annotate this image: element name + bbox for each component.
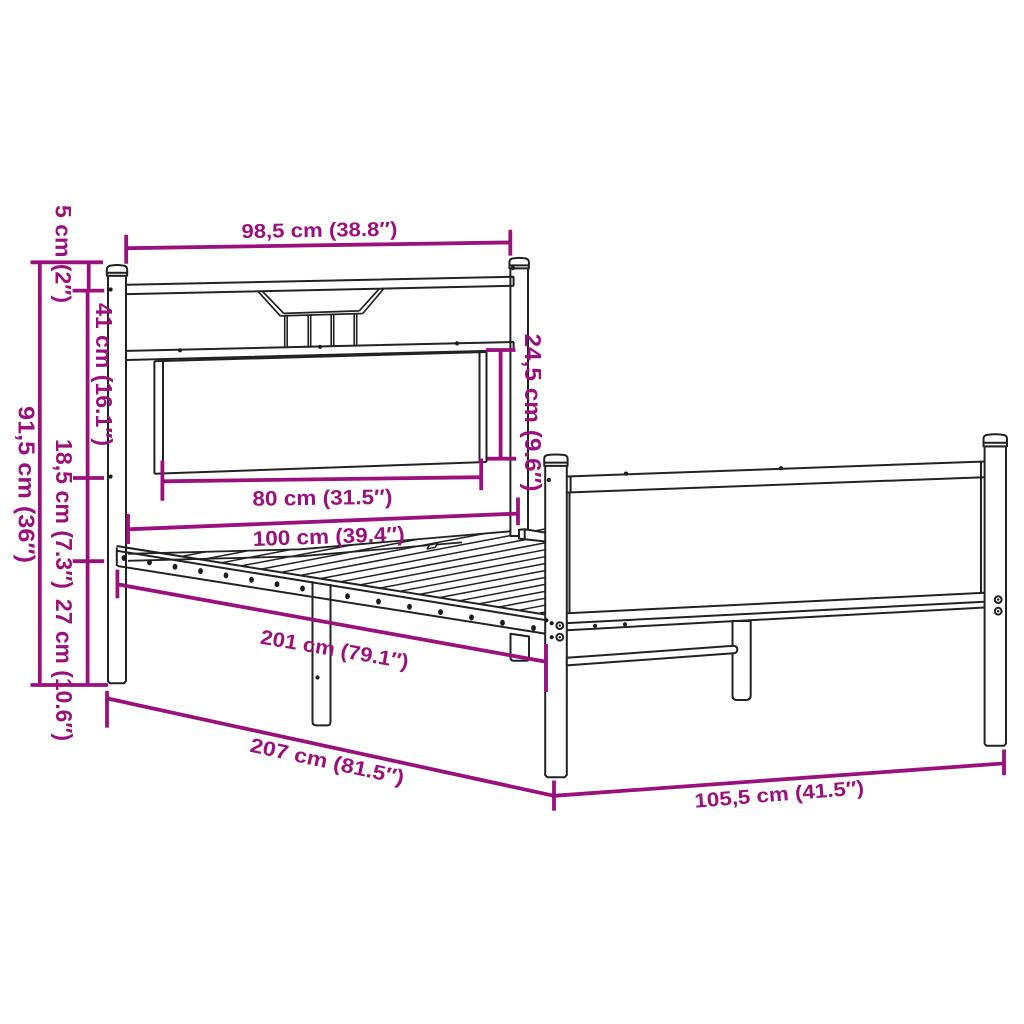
svg-text:80 cm (31.5″): 80 cm (31.5″) xyxy=(252,486,392,511)
svg-text:98,5 cm (38.8″): 98,5 cm (38.8″) xyxy=(241,219,397,243)
svg-text:24,5 cm (9.6″): 24,5 cm (9.6″) xyxy=(520,334,546,492)
svg-text:27 cm (10.6″): 27 cm (10.6″) xyxy=(51,599,77,741)
svg-text:91,5 cm (36″): 91,5 cm (36″) xyxy=(14,406,40,563)
svg-text:5 cm (2″): 5 cm (2″) xyxy=(51,205,76,303)
svg-text:41 cm (16.1″): 41 cm (16.1″) xyxy=(91,303,117,446)
svg-text:18,5 cm (7.3″): 18,5 cm (7.3″) xyxy=(51,439,77,589)
